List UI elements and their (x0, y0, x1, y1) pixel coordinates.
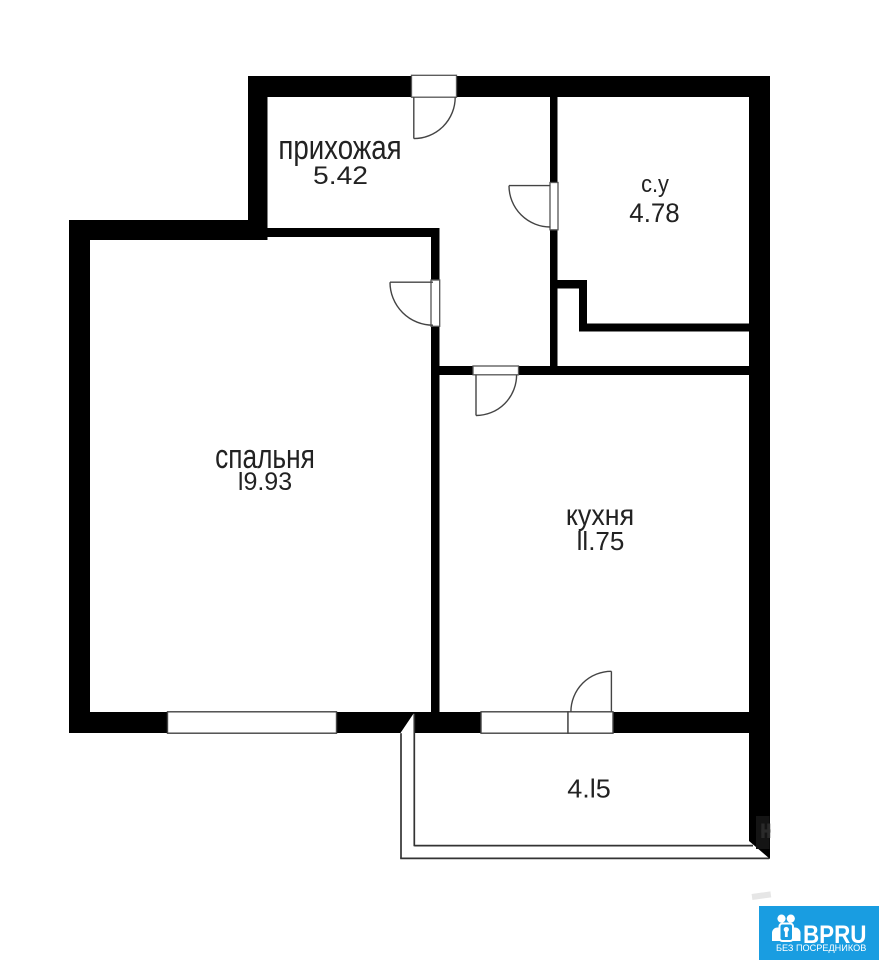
svg-text:4.l5: 4.l5 (567, 774, 611, 803)
svg-text:с.у: с.у (641, 170, 669, 197)
svg-text:БЕЗ ПОСРЕДНИКОВ: БЕЗ ПОСРЕДНИКОВ (776, 943, 866, 953)
svg-text:ll.75: ll.75 (577, 526, 625, 556)
svg-text:4.78: 4.78 (629, 198, 679, 229)
svg-text:l9.93: l9.93 (238, 468, 292, 496)
svg-text:5.42: 5.42 (313, 162, 368, 190)
